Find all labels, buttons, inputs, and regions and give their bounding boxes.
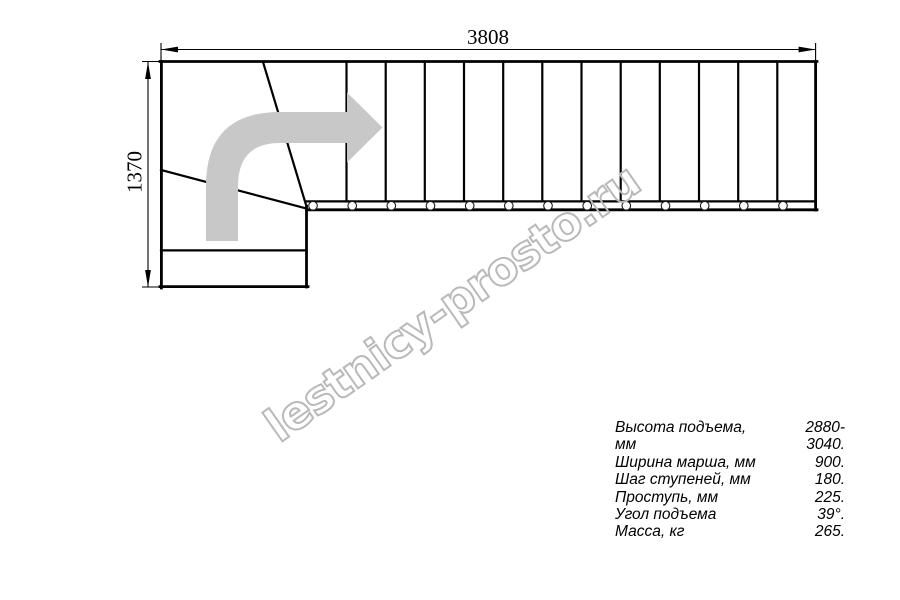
spec-value: 2880-3040. [768,419,845,454]
spec-row: Ширина марша, мм 900. [615,454,845,471]
spec-row: Шаг ступеней, мм 180. [615,471,845,488]
spec-value: 265. [815,523,845,540]
dimension-height-label: 1370 [125,151,146,193]
spec-value: 900. [815,454,845,471]
staircase-drawing-page: { "drawing": { "dimension_width": "3808"… [0,0,900,600]
spec-label: Ширина марша, мм [615,454,756,471]
spec-value: 180. [815,471,845,488]
tread-lines [347,62,778,201]
spec-value: 39°. [817,506,845,523]
winder-lines [161,62,816,250]
spec-row: Проступь, мм 225. [615,489,845,506]
specs-table: Высота подъема, мм 2880-3040. Ширина мар… [615,419,845,541]
spec-row: Угол подъема 39°. [615,506,845,523]
spec-label: Высота подъема, мм [615,419,768,454]
spec-label: Шаг ступеней, мм [615,471,751,488]
spec-label: Угол подъема [615,506,716,523]
spec-row: Масса, кг 265. [615,523,845,540]
spec-row: Высота подъема, мм 2880-3040. [615,419,845,454]
dimension-width-label: 3808 [455,27,521,48]
spec-label: Проступь, мм [615,489,718,506]
spec-label: Масса, кг [615,523,684,540]
spec-value: 225. [815,489,845,506]
